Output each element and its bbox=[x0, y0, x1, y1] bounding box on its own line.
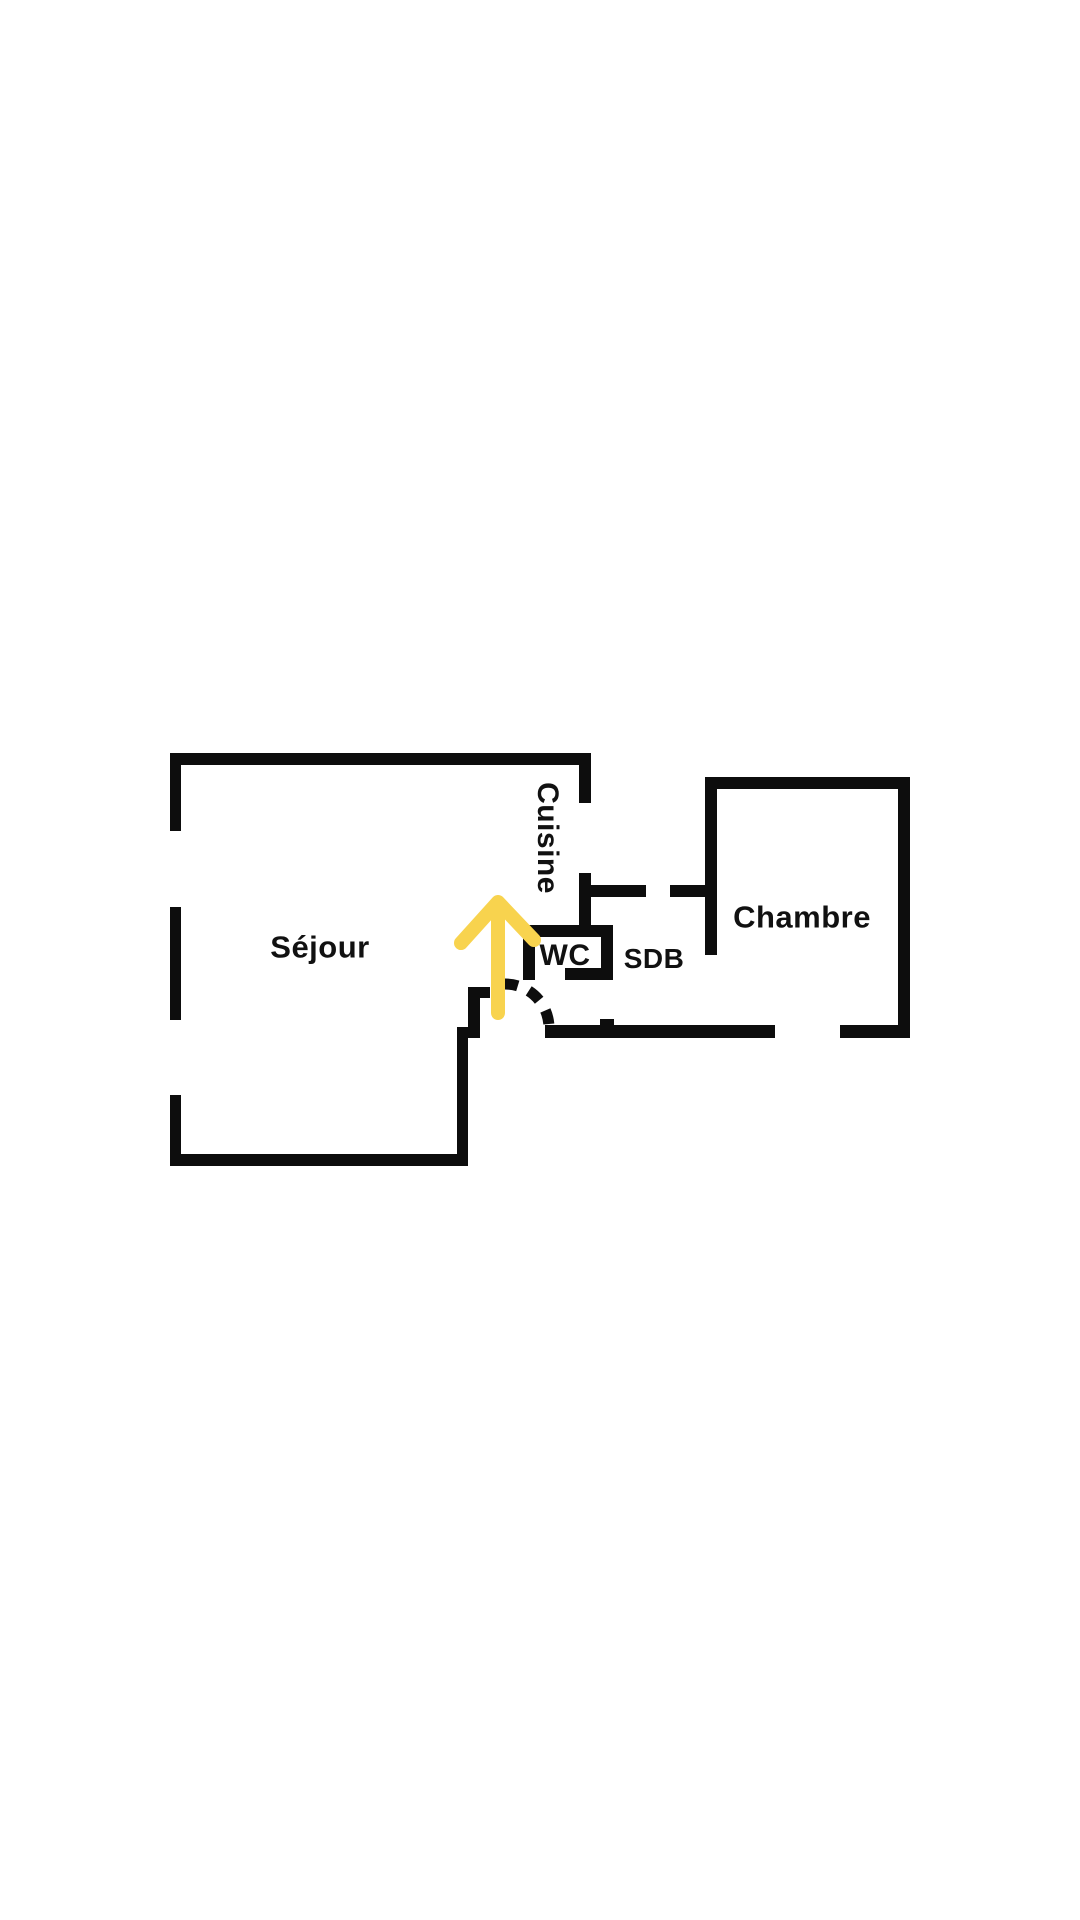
wall-segment bbox=[579, 753, 591, 803]
wall-segment bbox=[898, 777, 910, 1037]
wall-segment bbox=[457, 1033, 468, 1166]
room-label-wc: WC bbox=[540, 941, 591, 971]
wall-segment bbox=[840, 1025, 910, 1038]
door-swing-arc bbox=[504, 984, 549, 1027]
wall-segment bbox=[468, 987, 490, 998]
wall-segment bbox=[170, 753, 591, 765]
floorplan: Séjour Cuisine WC SDB Chambre bbox=[0, 0, 1080, 1920]
room-label-cuisine: Cuisine bbox=[532, 782, 562, 894]
wall-segment bbox=[579, 873, 591, 930]
wall-segment bbox=[170, 1154, 468, 1166]
wall-segment bbox=[705, 777, 910, 789]
room-label-chambre: Chambre bbox=[733, 902, 871, 933]
room-label-sdb: SDB bbox=[624, 945, 685, 973]
wall-segment bbox=[579, 885, 646, 897]
wall-segment bbox=[170, 907, 181, 1020]
wall-segment bbox=[705, 777, 717, 955]
room-label-sejour: Séjour bbox=[270, 932, 369, 963]
wall-segment bbox=[545, 1025, 775, 1038]
wall-segment bbox=[170, 753, 181, 831]
wall-segment bbox=[600, 1019, 614, 1026]
